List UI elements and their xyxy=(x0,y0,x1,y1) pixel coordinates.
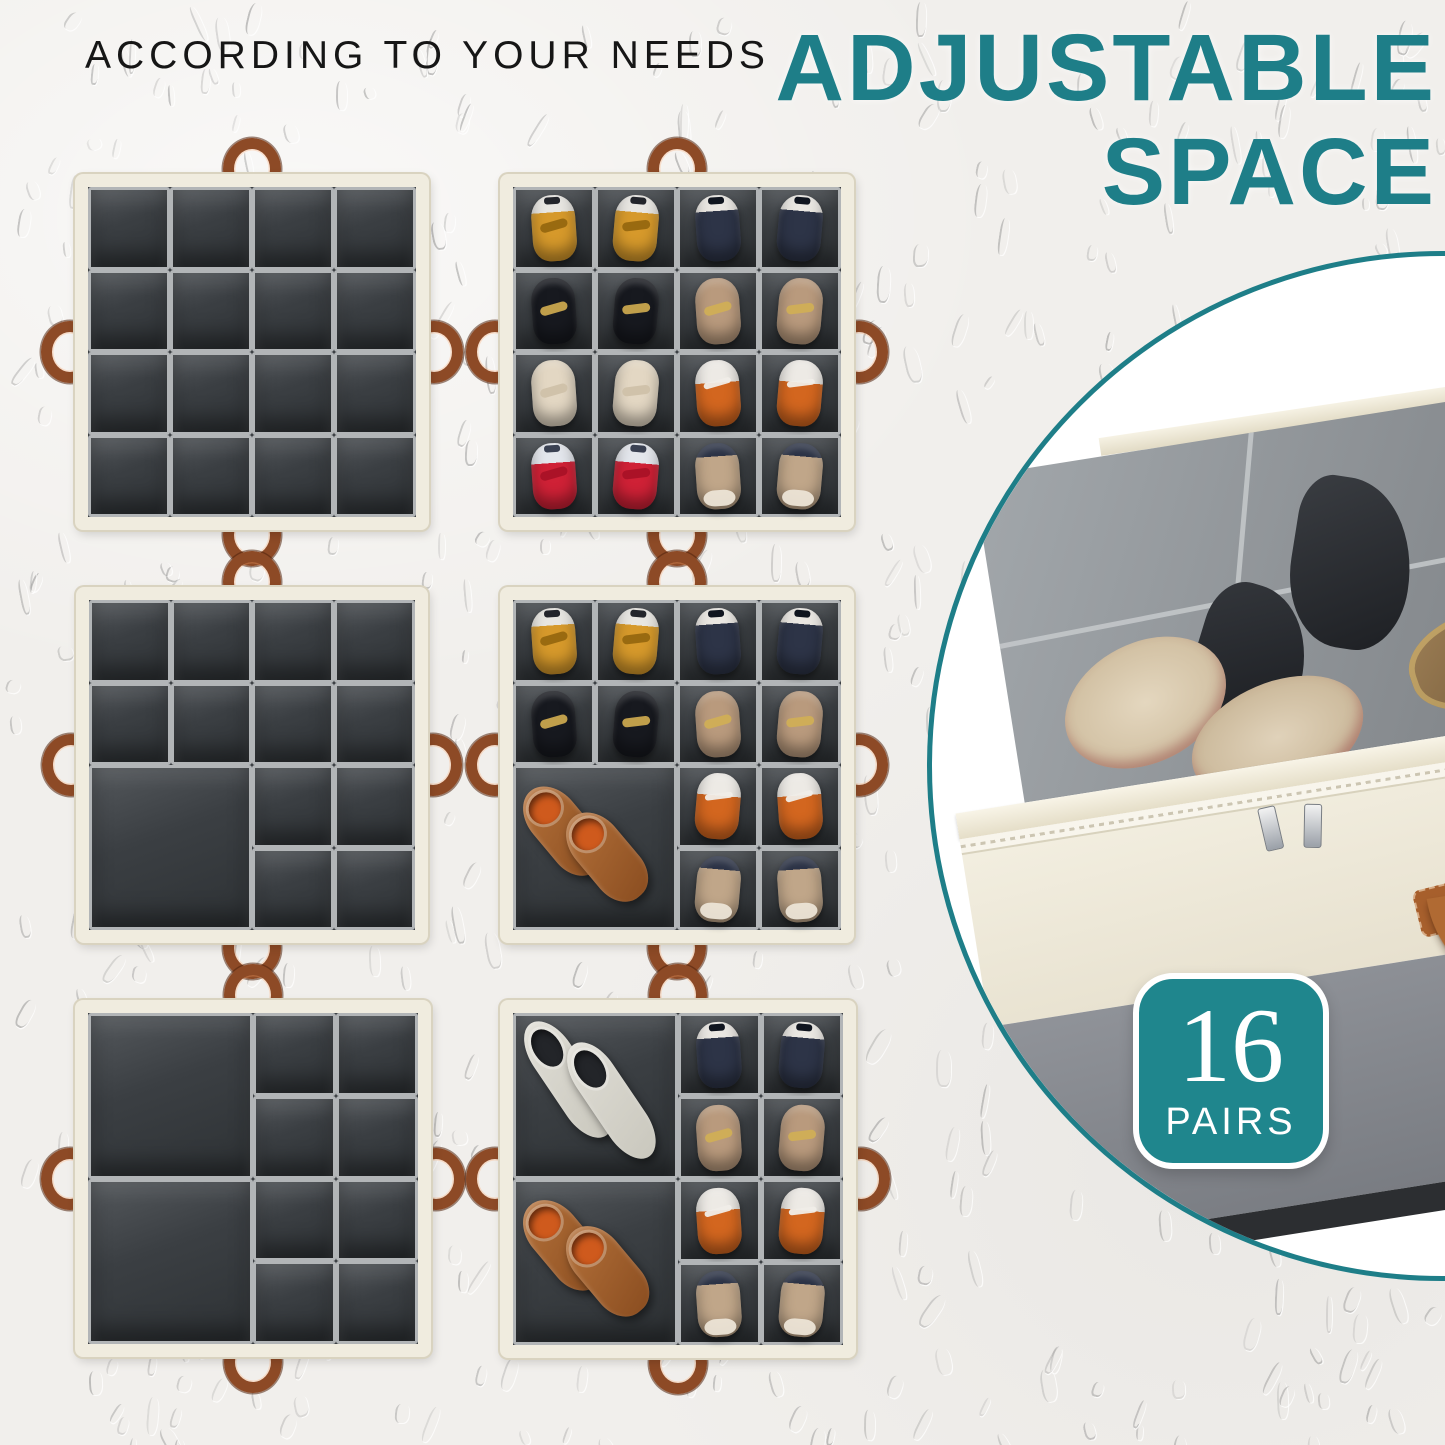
knit-texture-mark xyxy=(1386,1408,1407,1436)
knit-texture-mark xyxy=(1276,1381,1288,1419)
knit-texture-mark xyxy=(429,221,447,250)
compartment-cell xyxy=(252,683,334,766)
knit-texture-mark xyxy=(949,313,971,347)
knit-texture-mark xyxy=(1365,1404,1378,1423)
knit-texture-mark xyxy=(1131,1399,1148,1430)
organizer-interior xyxy=(88,187,416,517)
compartment-cell xyxy=(677,352,759,435)
compartment-cell xyxy=(170,352,252,435)
knit-texture-mark xyxy=(399,964,411,990)
knit-texture-mark xyxy=(462,1053,479,1081)
compartment-cell xyxy=(89,683,171,766)
knit-texture-mark xyxy=(444,920,457,944)
knit-texture-mark xyxy=(108,1402,126,1424)
shoe-flat-tan xyxy=(775,689,825,758)
knit-texture-mark xyxy=(456,93,473,118)
knit-texture-mark xyxy=(4,679,21,694)
headline-primary: ADJUSTABLE SPACE xyxy=(775,16,1437,224)
knit-texture-mark xyxy=(455,112,472,135)
knit-texture-mark xyxy=(8,356,37,387)
compartment-cell xyxy=(170,270,252,353)
knit-texture-mark xyxy=(231,81,240,97)
compartment-cell xyxy=(595,600,677,683)
knit-texture-mark xyxy=(16,209,32,237)
knit-texture-mark xyxy=(175,1375,192,1393)
compartment-cell xyxy=(677,187,759,270)
compartment-cell xyxy=(89,600,171,683)
compartment-cell xyxy=(336,1261,419,1344)
compartment-cell xyxy=(677,848,759,931)
knit-texture-mark xyxy=(159,560,174,576)
knit-texture-mark xyxy=(1082,1421,1098,1441)
knit-texture-mark xyxy=(766,1370,784,1398)
knit-texture-mark xyxy=(1042,1345,1064,1375)
knit-texture-mark xyxy=(18,915,32,939)
knit-texture-mark xyxy=(251,1392,262,1409)
knit-texture-mark xyxy=(863,1027,895,1065)
knit-texture-mark xyxy=(164,565,180,584)
organizer-empty-10-cells xyxy=(75,1000,431,1357)
compartment-cell xyxy=(253,1013,336,1096)
compartment-cell xyxy=(677,270,759,353)
compartment-cell xyxy=(252,765,334,848)
knit-texture-mark xyxy=(1352,1314,1368,1343)
knit-texture-mark xyxy=(978,1397,992,1417)
shoe-sneaker-navy xyxy=(694,194,743,263)
shoe-flat-cream xyxy=(530,359,579,428)
compartment-cell xyxy=(88,1013,253,1179)
compartment-cell xyxy=(595,683,677,766)
knit-texture-mark xyxy=(456,418,473,448)
knit-texture-mark xyxy=(943,1127,961,1162)
compartment-cell xyxy=(334,848,416,931)
knit-texture-mark xyxy=(979,1084,991,1118)
knit-texture-mark xyxy=(465,1260,492,1295)
compartment-cell xyxy=(513,683,595,766)
compartment-cell xyxy=(334,435,416,518)
knit-texture-mark xyxy=(1303,1383,1315,1404)
organizer-frame xyxy=(76,587,428,943)
compartment-cell xyxy=(253,1261,336,1344)
knit-texture-mark xyxy=(1422,1305,1444,1327)
knit-texture-mark xyxy=(1261,1361,1285,1396)
knit-texture-mark xyxy=(770,543,781,582)
knit-texture-mark xyxy=(911,1408,935,1441)
compartment-cell xyxy=(88,352,170,435)
shoe-flat-tan xyxy=(694,689,743,758)
headline-secondary: ACCORDING TO YOUR NEEDS xyxy=(85,34,770,78)
knit-texture-mark xyxy=(1363,1357,1385,1390)
shoe-pair-loafer-tan xyxy=(524,776,666,919)
knit-texture-mark xyxy=(278,1412,299,1441)
knit-texture-mark xyxy=(9,715,22,735)
compartment-cell xyxy=(252,848,334,931)
knit-texture-mark xyxy=(949,1170,959,1198)
knit-texture-mark xyxy=(1359,1349,1374,1371)
knit-texture-mark xyxy=(1336,1349,1360,1385)
shoe-sneaker-gold xyxy=(776,854,825,923)
compartment-cell xyxy=(252,187,334,270)
shoe-flat-tan xyxy=(695,1103,744,1172)
compartment-cell xyxy=(513,765,677,930)
knit-texture-mark xyxy=(460,861,483,890)
compartment-cell xyxy=(513,187,595,270)
compartment-cell xyxy=(252,352,334,435)
knit-texture-mark xyxy=(890,1266,908,1300)
knit-texture-mark xyxy=(1318,1393,1330,1409)
organizer-filled-10-cells xyxy=(500,1000,856,1358)
knit-texture-mark xyxy=(18,1158,40,1189)
knit-texture-mark xyxy=(282,963,294,987)
knit-texture-mark xyxy=(209,1378,229,1403)
knit-texture-mark xyxy=(394,1404,409,1423)
shoe-sneaker-gold xyxy=(694,441,743,510)
knit-texture-mark xyxy=(61,10,84,32)
knit-texture-mark xyxy=(885,1373,906,1399)
shoe-sneaker-navy xyxy=(695,1020,744,1089)
organizer-interior xyxy=(88,1013,418,1344)
knit-texture-mark xyxy=(995,1432,1018,1445)
shoe-converse-red xyxy=(611,441,661,510)
knit-texture-mark xyxy=(1171,1379,1185,1399)
knit-texture-mark xyxy=(89,1370,102,1395)
organizer-frame xyxy=(75,1000,431,1357)
knit-texture-mark xyxy=(1277,1385,1297,1408)
shoe-hightop-orange xyxy=(695,1186,744,1255)
knit-texture-mark xyxy=(752,950,763,968)
compartment-cell xyxy=(513,1013,678,1179)
compartment-cell xyxy=(513,352,595,435)
compartment-cell xyxy=(253,1096,336,1179)
knit-texture-mark xyxy=(499,1357,521,1393)
compartment-cell xyxy=(336,1013,419,1096)
knit-texture-mark xyxy=(518,1429,531,1445)
compartment-cell xyxy=(678,1262,761,1345)
shoe-sneaker-gold xyxy=(775,441,825,510)
knit-texture-mark xyxy=(484,538,501,562)
shoe-sneaker-navy xyxy=(777,1020,827,1090)
knit-texture-mark xyxy=(876,265,892,303)
knit-texture-mark xyxy=(131,965,147,984)
shoe-converse-yellow xyxy=(611,607,661,676)
knit-texture-mark xyxy=(883,647,894,672)
shoe-flat-black xyxy=(611,689,661,758)
knit-texture-mark xyxy=(174,1439,185,1445)
knit-texture-mark xyxy=(157,1426,183,1445)
headline-line-space: SPACE xyxy=(775,120,1437,224)
compartment-cell xyxy=(595,270,677,353)
knit-texture-mark xyxy=(147,1356,158,1377)
knit-texture-mark xyxy=(458,1271,468,1293)
compartment-cell xyxy=(677,600,759,683)
knit-texture-mark xyxy=(281,124,300,145)
knit-texture-mark xyxy=(1341,1285,1363,1313)
shoe-pair-boot-white xyxy=(524,1024,667,1168)
knit-texture-mark xyxy=(438,532,445,558)
organizer-frame xyxy=(75,174,429,530)
knit-texture-mark xyxy=(151,77,166,99)
knit-texture-mark xyxy=(168,84,176,106)
organizer-interior xyxy=(513,1013,843,1345)
knit-texture-mark xyxy=(443,213,456,233)
knit-texture-mark xyxy=(62,242,71,257)
knit-texture-mark xyxy=(898,1230,908,1256)
knit-texture-mark xyxy=(954,389,973,425)
shoe-hightop-orange xyxy=(694,359,743,428)
organizer-frame xyxy=(500,587,854,943)
knit-texture-mark xyxy=(562,1426,574,1444)
knit-texture-mark xyxy=(168,1407,183,1428)
knit-texture-mark xyxy=(450,905,466,943)
knit-texture-mark xyxy=(13,998,39,1030)
knit-texture-mark xyxy=(712,1375,721,1392)
knit-texture-mark xyxy=(461,650,469,664)
compartment-cell xyxy=(677,435,759,518)
shoe-sneaker-gold xyxy=(777,1269,827,1339)
knit-texture-mark xyxy=(596,1436,620,1445)
knit-texture-mark xyxy=(825,1428,836,1445)
knit-texture-mark xyxy=(1135,1423,1143,1441)
knit-texture-mark xyxy=(680,104,688,140)
knit-texture-mark xyxy=(36,405,53,426)
compartment-cell xyxy=(595,187,677,270)
knit-texture-mark xyxy=(443,811,456,826)
shoe-flat-tan xyxy=(775,276,825,345)
knit-texture-mark xyxy=(473,530,491,547)
shoe-hightop-orange xyxy=(775,359,825,428)
badge-label: PAIRS xyxy=(1139,1101,1323,1144)
knit-texture-mark xyxy=(29,570,38,592)
compartment-cell xyxy=(759,435,841,518)
knit-texture-mark xyxy=(105,1359,119,1377)
compartment-cell xyxy=(88,270,170,353)
capacity-badge: 16 PAIRS xyxy=(1133,973,1329,1169)
knit-texture-mark xyxy=(1274,1279,1284,1317)
compartment-cell xyxy=(252,600,334,683)
compartment-cell xyxy=(759,270,841,353)
knit-texture-mark xyxy=(966,1249,985,1287)
knit-texture-mark xyxy=(903,282,915,309)
organizer-frame xyxy=(500,174,854,530)
organizer-empty-13-cells xyxy=(76,587,428,943)
organizer-interior xyxy=(89,600,415,930)
knit-texture-mark xyxy=(525,113,552,149)
knit-texture-mark xyxy=(1241,1317,1263,1352)
knit-texture-mark xyxy=(29,572,45,593)
knit-texture-mark xyxy=(936,1049,951,1087)
compartment-cell xyxy=(677,765,759,848)
knit-texture-mark xyxy=(1032,323,1045,346)
knit-texture-mark xyxy=(1048,1345,1064,1374)
knit-texture-mark xyxy=(885,849,898,872)
knit-texture-mark xyxy=(145,1397,159,1436)
knit-texture-mark xyxy=(454,260,467,285)
compartment-cell xyxy=(88,187,170,270)
shoe-pair-loafer-tan xyxy=(524,1190,667,1334)
knit-texture-mark xyxy=(231,114,241,132)
shoe-flat-black xyxy=(530,276,579,345)
knit-texture-mark xyxy=(901,346,924,384)
compartment-cell xyxy=(759,600,841,683)
compartment-cell xyxy=(253,1179,336,1262)
knit-texture-mark xyxy=(368,945,380,976)
knit-texture-mark xyxy=(99,953,128,985)
knit-texture-mark xyxy=(116,1416,131,1436)
compartment-cell xyxy=(678,1096,761,1179)
compartment-cell xyxy=(171,683,253,766)
knit-texture-mark xyxy=(1023,311,1032,340)
knit-texture-mark xyxy=(1326,1296,1333,1333)
shoe-flat-black xyxy=(530,689,579,758)
knit-texture-mark xyxy=(1038,1368,1058,1403)
shoe-flat-tan xyxy=(694,276,743,345)
zipper-pull-icon xyxy=(1257,805,1284,852)
knit-texture-mark xyxy=(807,1427,827,1445)
knit-texture-mark xyxy=(714,109,727,129)
shoe-sneaker-navy xyxy=(694,607,743,676)
knit-texture-mark xyxy=(885,957,902,978)
knit-texture-mark xyxy=(1003,308,1025,337)
knit-texture-mark xyxy=(1104,252,1118,274)
compartment-cell xyxy=(171,600,253,683)
knit-texture-mark xyxy=(327,536,339,554)
organizer-empty-16-cells xyxy=(75,174,429,530)
knit-texture-mark xyxy=(793,559,811,589)
shoe-hightop-orange xyxy=(777,1186,827,1256)
knit-texture-mark xyxy=(46,157,61,176)
compartment-cell xyxy=(678,1013,761,1096)
knit-texture-mark xyxy=(887,623,903,641)
knit-texture-mark xyxy=(909,666,925,687)
knit-texture-mark xyxy=(980,1149,999,1177)
compartment-cell xyxy=(761,1179,844,1262)
compartment-cell xyxy=(678,1179,761,1262)
knit-texture-mark xyxy=(883,559,905,588)
compartment-cell xyxy=(336,1179,419,1262)
compartment-cell xyxy=(334,600,416,683)
compartment-cell xyxy=(334,683,416,766)
compartment-cell xyxy=(513,1179,678,1345)
knit-texture-mark xyxy=(916,1265,934,1287)
compartment-cell xyxy=(761,1096,844,1179)
knit-texture-mark xyxy=(1090,1381,1105,1398)
knit-texture-mark xyxy=(1306,1435,1320,1445)
compartment-cell xyxy=(513,270,595,353)
knit-texture-mark xyxy=(570,960,590,990)
knit-texture-mark xyxy=(57,645,75,662)
zipper-pull-icon xyxy=(1303,804,1322,848)
compartment-cell xyxy=(759,765,841,848)
knit-texture-mark xyxy=(474,1364,488,1387)
knit-texture-mark xyxy=(980,1121,991,1155)
shoe-converse-yellow xyxy=(530,194,579,263)
knit-texture-mark xyxy=(433,1112,443,1138)
knit-texture-mark xyxy=(1308,1346,1324,1364)
shoe-flat-cream xyxy=(611,359,661,428)
shoe-flat-black xyxy=(611,276,661,345)
knit-texture-mark xyxy=(450,1129,467,1146)
knit-texture-mark xyxy=(419,1405,442,1442)
knit-texture-mark xyxy=(448,1244,462,1264)
shoe-hightop-orange xyxy=(776,772,825,841)
compartment-cell xyxy=(334,352,416,435)
compartment-cell xyxy=(336,1096,419,1179)
knit-texture-mark xyxy=(336,80,347,110)
compartment-cell xyxy=(761,1262,844,1345)
compartment-cell xyxy=(595,352,677,435)
knit-texture-mark xyxy=(448,713,467,742)
compartment-cell xyxy=(88,435,170,518)
compartment-cell xyxy=(170,435,252,518)
knit-texture-mark xyxy=(864,1410,875,1441)
knit-texture-mark xyxy=(362,86,377,101)
shoe-sneaker-gold xyxy=(695,1269,744,1338)
knit-texture-mark xyxy=(292,1394,309,1419)
headline-line-adjustable: ADJUSTABLE xyxy=(775,16,1437,120)
compartment-cell xyxy=(513,435,595,518)
knit-texture-mark xyxy=(1085,245,1097,262)
knit-texture-mark xyxy=(915,1293,949,1331)
compartment-cell xyxy=(759,848,841,931)
knit-texture-mark xyxy=(1386,1285,1410,1324)
compartment-cell xyxy=(677,683,759,766)
compartment-cell xyxy=(334,765,416,848)
organizer-interior xyxy=(513,187,841,517)
shoe-converse-yellow xyxy=(530,607,579,676)
knit-texture-mark xyxy=(539,539,550,554)
knit-texture-mark xyxy=(575,1366,588,1393)
knit-texture-mark xyxy=(896,613,912,636)
knit-texture-mark xyxy=(126,1438,137,1445)
knit-texture-mark xyxy=(1172,1435,1188,1445)
compartment-cell xyxy=(761,1013,844,1096)
organizer-filled-13-cells xyxy=(500,587,854,943)
knit-texture-mark xyxy=(787,1404,810,1434)
knit-texture-mark xyxy=(57,532,72,564)
compartment-cell xyxy=(759,683,841,766)
knit-texture-mark xyxy=(16,578,31,615)
knit-texture-mark xyxy=(933,1347,953,1376)
compartment-cell xyxy=(89,765,252,930)
organizer-frame xyxy=(500,1000,856,1358)
knit-texture-mark xyxy=(913,243,929,268)
knit-texture-mark xyxy=(880,532,895,552)
compartment-cell xyxy=(513,600,595,683)
badge-number: 16 xyxy=(1139,993,1323,1099)
compartment-cell xyxy=(334,270,416,353)
compartment-cell xyxy=(595,435,677,518)
compartment-cell xyxy=(170,187,252,270)
knit-texture-mark xyxy=(910,543,933,575)
compartment-cell xyxy=(252,270,334,353)
shoe-sneaker-gold xyxy=(693,854,743,923)
knit-texture-mark xyxy=(463,579,473,612)
compartment-cell xyxy=(334,187,416,270)
knit-texture-mark xyxy=(86,136,104,152)
knit-texture-mark xyxy=(111,138,121,158)
shoe-converse-yellow xyxy=(611,194,661,263)
shoe-flat-tan xyxy=(777,1103,827,1173)
shoe-converse-red xyxy=(530,441,579,510)
product-marketing-image: ACCORDING TO YOUR NEEDS ADJUSTABLE SPACE xyxy=(0,0,1445,1445)
shoe-hightop-orange xyxy=(693,772,743,841)
shoe-sneaker-navy xyxy=(775,607,825,676)
organizer-filled-16-cells xyxy=(500,174,854,530)
knit-texture-mark xyxy=(1105,331,1116,352)
knit-texture-mark xyxy=(983,376,996,390)
knit-texture-mark xyxy=(847,964,866,990)
knit-texture-mark xyxy=(958,1186,972,1217)
